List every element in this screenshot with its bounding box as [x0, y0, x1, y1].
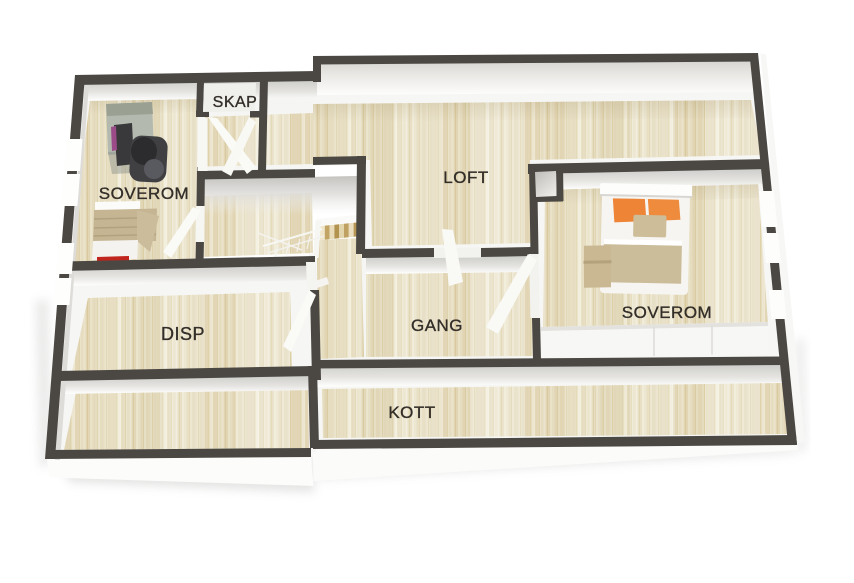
svg-text:GANG: GANG	[411, 316, 463, 335]
svg-text:DISP: DISP	[161, 324, 205, 344]
svg-text:SOVEROM: SOVEROM	[99, 184, 189, 203]
svg-text:KOTT: KOTT	[388, 403, 435, 422]
svg-text:SKAP: SKAP	[213, 94, 258, 111]
svg-text:LOFT: LOFT	[443, 168, 488, 187]
svg-text:SOVEROM: SOVEROM	[622, 303, 712, 322]
